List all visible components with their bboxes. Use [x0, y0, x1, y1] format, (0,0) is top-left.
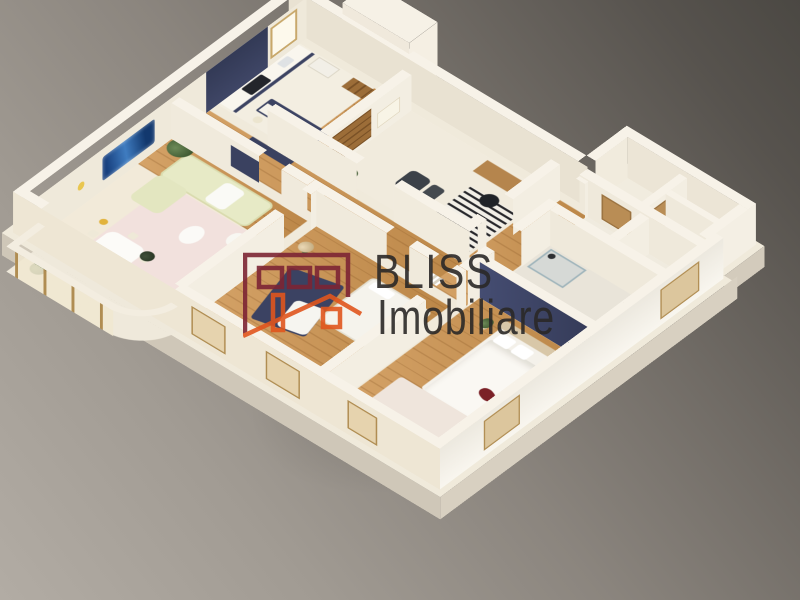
logo-window	[317, 268, 338, 287]
brand-subtitle: Imobiliare	[377, 294, 555, 343]
watermark: BLISS Imobiliare	[0, 0, 800, 600]
logo-window	[289, 268, 310, 287]
render-canvas: BLISS Imobiliare	[0, 0, 800, 600]
agency-logo-icon	[243, 250, 365, 342]
logo-door	[273, 295, 283, 330]
logo-window	[259, 268, 282, 287]
logo-house-window	[323, 309, 340, 327]
logo-house-roof	[243, 296, 361, 336]
brand-name: BLISS	[374, 249, 494, 297]
